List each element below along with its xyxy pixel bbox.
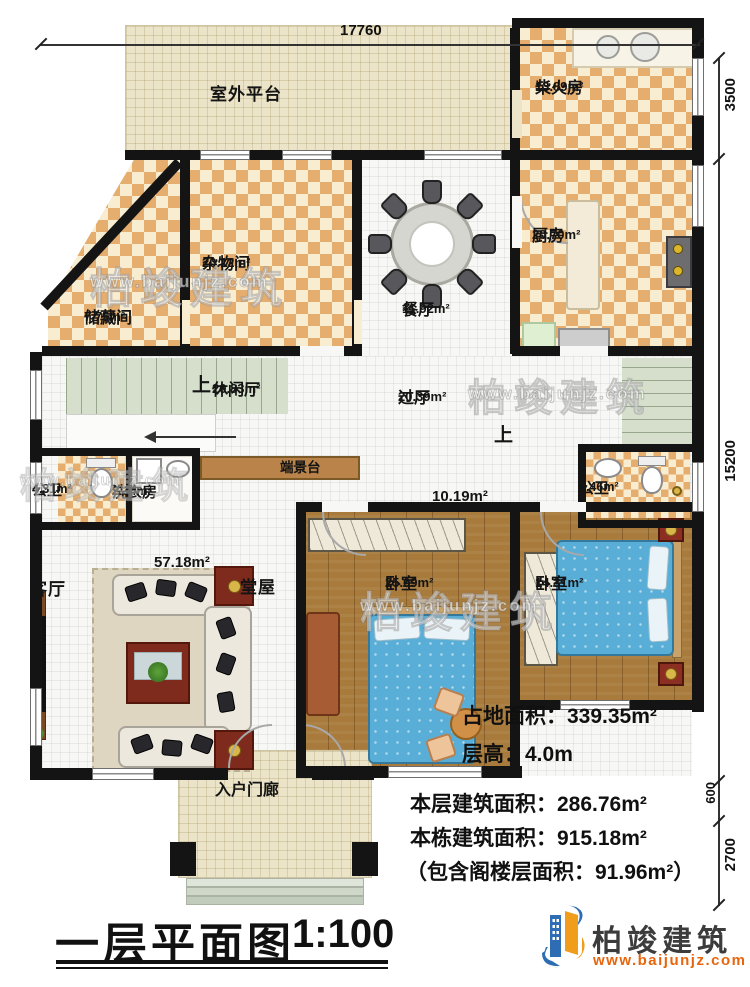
room-area: 4.46m² (579, 480, 619, 494)
window (282, 150, 332, 160)
cushion-icon (155, 579, 177, 598)
room-area: 13.89m² (535, 80, 583, 95)
room-area: 2.34m² (112, 484, 152, 498)
info-footprint: 占地面积：339.35m² (462, 700, 657, 730)
bathroom-sink-icon (594, 458, 622, 478)
nightstand-icon (658, 662, 684, 686)
dimension-right-bottom: 2700 (722, 838, 739, 871)
laundry-sink-icon (166, 460, 190, 478)
chair-icon (368, 234, 392, 254)
stairs-up-label: 上 (494, 420, 513, 447)
wall (180, 768, 228, 780)
dimension-right-small: 600 (703, 782, 718, 804)
pillow-icon (647, 598, 669, 643)
dimension-line-top (40, 44, 700, 46)
room-area: 20.12m² (202, 256, 250, 271)
pillow-icon (423, 617, 470, 641)
dimension-right-top: 3500 (722, 78, 739, 111)
room-area: 25.09m² (385, 576, 433, 591)
room-name: 客厅 (30, 580, 66, 600)
chair-icon (472, 234, 496, 254)
window (92, 768, 154, 780)
window (30, 370, 42, 420)
toilet-tank-icon (638, 456, 666, 466)
door-opening (182, 300, 190, 344)
room-area: 14.31m² (535, 576, 583, 591)
wall (692, 18, 704, 712)
room-name: 室外平台 (210, 85, 282, 105)
pillow-icon (646, 545, 669, 590)
basin-icon (596, 35, 620, 59)
room-name: 堂屋 (240, 578, 276, 598)
door-opening (300, 346, 344, 356)
stair-direction-line (150, 436, 236, 438)
wall (42, 448, 198, 456)
chair-icon (422, 180, 442, 204)
floor-plan-canvas: 室外平台 柴火房13.89m² 厨房20.70m² 杂物间20.12m² 储藏间… (0, 0, 750, 987)
window (200, 150, 250, 160)
basin-icon (630, 32, 660, 62)
cushion-icon (216, 691, 235, 713)
window (692, 58, 704, 116)
burner-icon (673, 266, 683, 276)
window (692, 165, 704, 227)
room-area: 20.39m² (398, 390, 446, 405)
washing-machine-icon (136, 458, 162, 484)
bedroom-bench-icon (306, 612, 340, 716)
cushion-icon (161, 739, 182, 757)
wall-post (352, 842, 378, 876)
wall (510, 28, 520, 354)
drawing-scale: 1:100 (292, 912, 394, 957)
dining-table-top-icon (409, 221, 455, 267)
room-name: 入户门廊 (215, 782, 279, 800)
door-opening (560, 346, 608, 356)
window (424, 150, 502, 160)
logo-url: www.baijunjz.com (593, 952, 746, 969)
stair-direction-arrow (138, 431, 156, 443)
wall (312, 768, 374, 780)
room-name: 端景台 (280, 460, 321, 476)
window (692, 462, 704, 512)
toilet-icon (90, 468, 113, 498)
porch-step (186, 878, 364, 887)
room-area: 7.75m² (84, 310, 125, 325)
wall (512, 18, 704, 28)
door-opening (512, 196, 522, 248)
burner-icon (673, 244, 683, 254)
lamp-icon (672, 486, 682, 496)
toilet-tank-icon (86, 458, 116, 468)
right-staircase (622, 358, 692, 446)
title-underline (56, 960, 388, 969)
wall (296, 502, 306, 778)
room-area: 20.70m² (532, 228, 580, 243)
room-area: 4.31m² (32, 482, 72, 496)
wall (578, 520, 694, 528)
window (30, 688, 42, 746)
wardrobe-icon (524, 552, 558, 666)
door-opening (322, 502, 368, 512)
wall (42, 522, 200, 530)
stairs-up-label: 上 (192, 370, 211, 397)
room-area: 11.92m² (402, 302, 450, 317)
room-area: 20.83m² (212, 382, 260, 397)
wall (192, 448, 200, 530)
room-area: 10.19m² (432, 488, 488, 505)
info-floor-height: 层高：4.0m (462, 738, 573, 768)
door-opening (354, 300, 362, 344)
pillow-icon (373, 616, 420, 641)
wall (512, 346, 704, 356)
porch-step (186, 887, 364, 896)
door-opening (512, 90, 522, 138)
toilet-icon (641, 466, 663, 494)
plant-icon (148, 662, 168, 682)
kitchen-island-icon (566, 200, 600, 310)
logo-building-icon (538, 903, 588, 969)
info-attic-note: （包含阁楼层面积：91.96m²） (406, 856, 694, 886)
dimension-right-mid: 15200 (722, 440, 739, 482)
dimension-top: 17760 (340, 22, 382, 39)
wall (578, 444, 698, 452)
info-floor-area: 本层建筑面积：286.76m² (410, 788, 647, 818)
door-opening (540, 502, 586, 512)
room-area: 57.18m² (154, 554, 210, 571)
info-building-area: 本栋建筑面积：915.18m² (410, 822, 647, 852)
porch-step (186, 896, 364, 905)
wall-post (170, 842, 196, 876)
